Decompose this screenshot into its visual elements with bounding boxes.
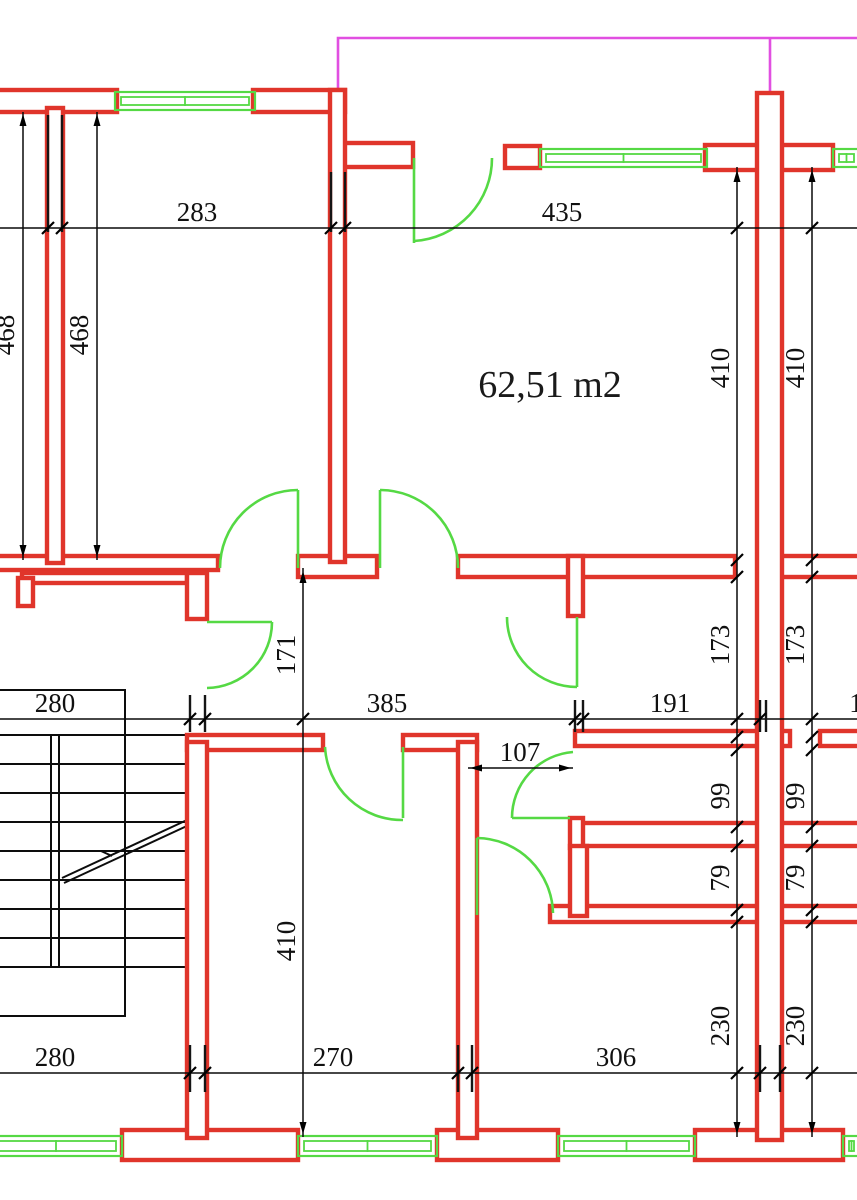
wall-segment	[187, 573, 207, 619]
dimension-label: 230	[780, 1006, 810, 1047]
wall-segment	[757, 93, 782, 1140]
window-glyph	[298, 1136, 437, 1156]
door-swing-arc	[325, 747, 403, 820]
wall-segment	[505, 146, 540, 168]
dimension-label: 306	[596, 1042, 637, 1072]
wall-segment	[330, 90, 345, 562]
door-swing-arc	[207, 622, 272, 688]
door-swing-arc	[380, 490, 458, 568]
dimension-label: 410	[705, 348, 735, 389]
dimension-arrow	[300, 1122, 307, 1134]
dimension-label: 468	[64, 315, 94, 356]
window-glyph	[833, 149, 857, 167]
dimension-label: 468	[0, 315, 20, 356]
dimension-label: 99	[705, 783, 735, 810]
dimension-label: 280	[35, 1042, 76, 1072]
wall-segment	[570, 818, 583, 848]
wall-segment	[47, 108, 63, 563]
window-glyph	[540, 149, 707, 167]
windows-layer	[0, 92, 857, 1156]
dimension-label: 230	[705, 1006, 735, 1047]
floor-plan-screenshot: 2834354684684104101711731732803851911107…	[0, 0, 857, 1200]
dimension-label: 435	[542, 197, 583, 227]
door-swing-arc	[507, 617, 577, 687]
dimension-label: 173	[780, 625, 810, 666]
wall-segment	[780, 556, 857, 577]
dimension-label: 79	[705, 865, 735, 892]
dimension-label: 410	[271, 921, 301, 962]
dimension-label: 385	[367, 688, 408, 718]
wall-segment	[820, 731, 857, 746]
wall-segment	[122, 1130, 298, 1160]
doors-layer	[207, 158, 577, 915]
dimension-label: 107	[500, 737, 541, 767]
dimension-label: 99	[780, 783, 810, 810]
room-area-label: 62,51 m2	[478, 364, 622, 406]
wall-segment	[550, 906, 857, 922]
dimension-label: 79	[780, 865, 810, 892]
dimension-label: 270	[313, 1042, 354, 1072]
dimension-arrow	[20, 114, 27, 126]
wall-segment	[458, 556, 735, 577]
door-swing-arc	[477, 838, 553, 913]
wall-segment	[22, 573, 187, 583]
dimension-label: 280	[35, 688, 76, 718]
wall-segment	[437, 1130, 558, 1160]
wall-segment	[568, 556, 583, 616]
reference-line	[338, 38, 857, 93]
reference-line-layer	[338, 38, 857, 93]
dimension-label: 173	[705, 625, 735, 666]
stair-direction-line	[64, 825, 189, 883]
wall-segment	[0, 556, 218, 570]
window-inner-line	[0, 1141, 116, 1151]
dimensions-layer: 2834354684684104101711731732803851911107…	[0, 112, 857, 1137]
window-glyph	[115, 92, 255, 110]
staircase-layer	[0, 690, 189, 1016]
dimension-label: 283	[177, 197, 218, 227]
dimension-label: 171	[271, 635, 301, 676]
dimension-label: 1	[849, 688, 857, 718]
dimension-label: 410	[780, 348, 810, 389]
window-outer-line	[0, 1136, 122, 1156]
window-glyph	[558, 1136, 695, 1156]
wall-segment	[343, 143, 413, 167]
dimension-arrow	[559, 765, 571, 772]
dimension-label: 191	[650, 688, 691, 718]
dimension-arrow	[94, 114, 101, 126]
window-glyph	[0, 1136, 122, 1156]
floor-plan-canvas: 2834354684684104101711731732803851911107…	[0, 0, 857, 1200]
wall-segment	[18, 578, 33, 606]
wall-segment	[570, 846, 587, 916]
door-swing-arc	[220, 490, 298, 568]
